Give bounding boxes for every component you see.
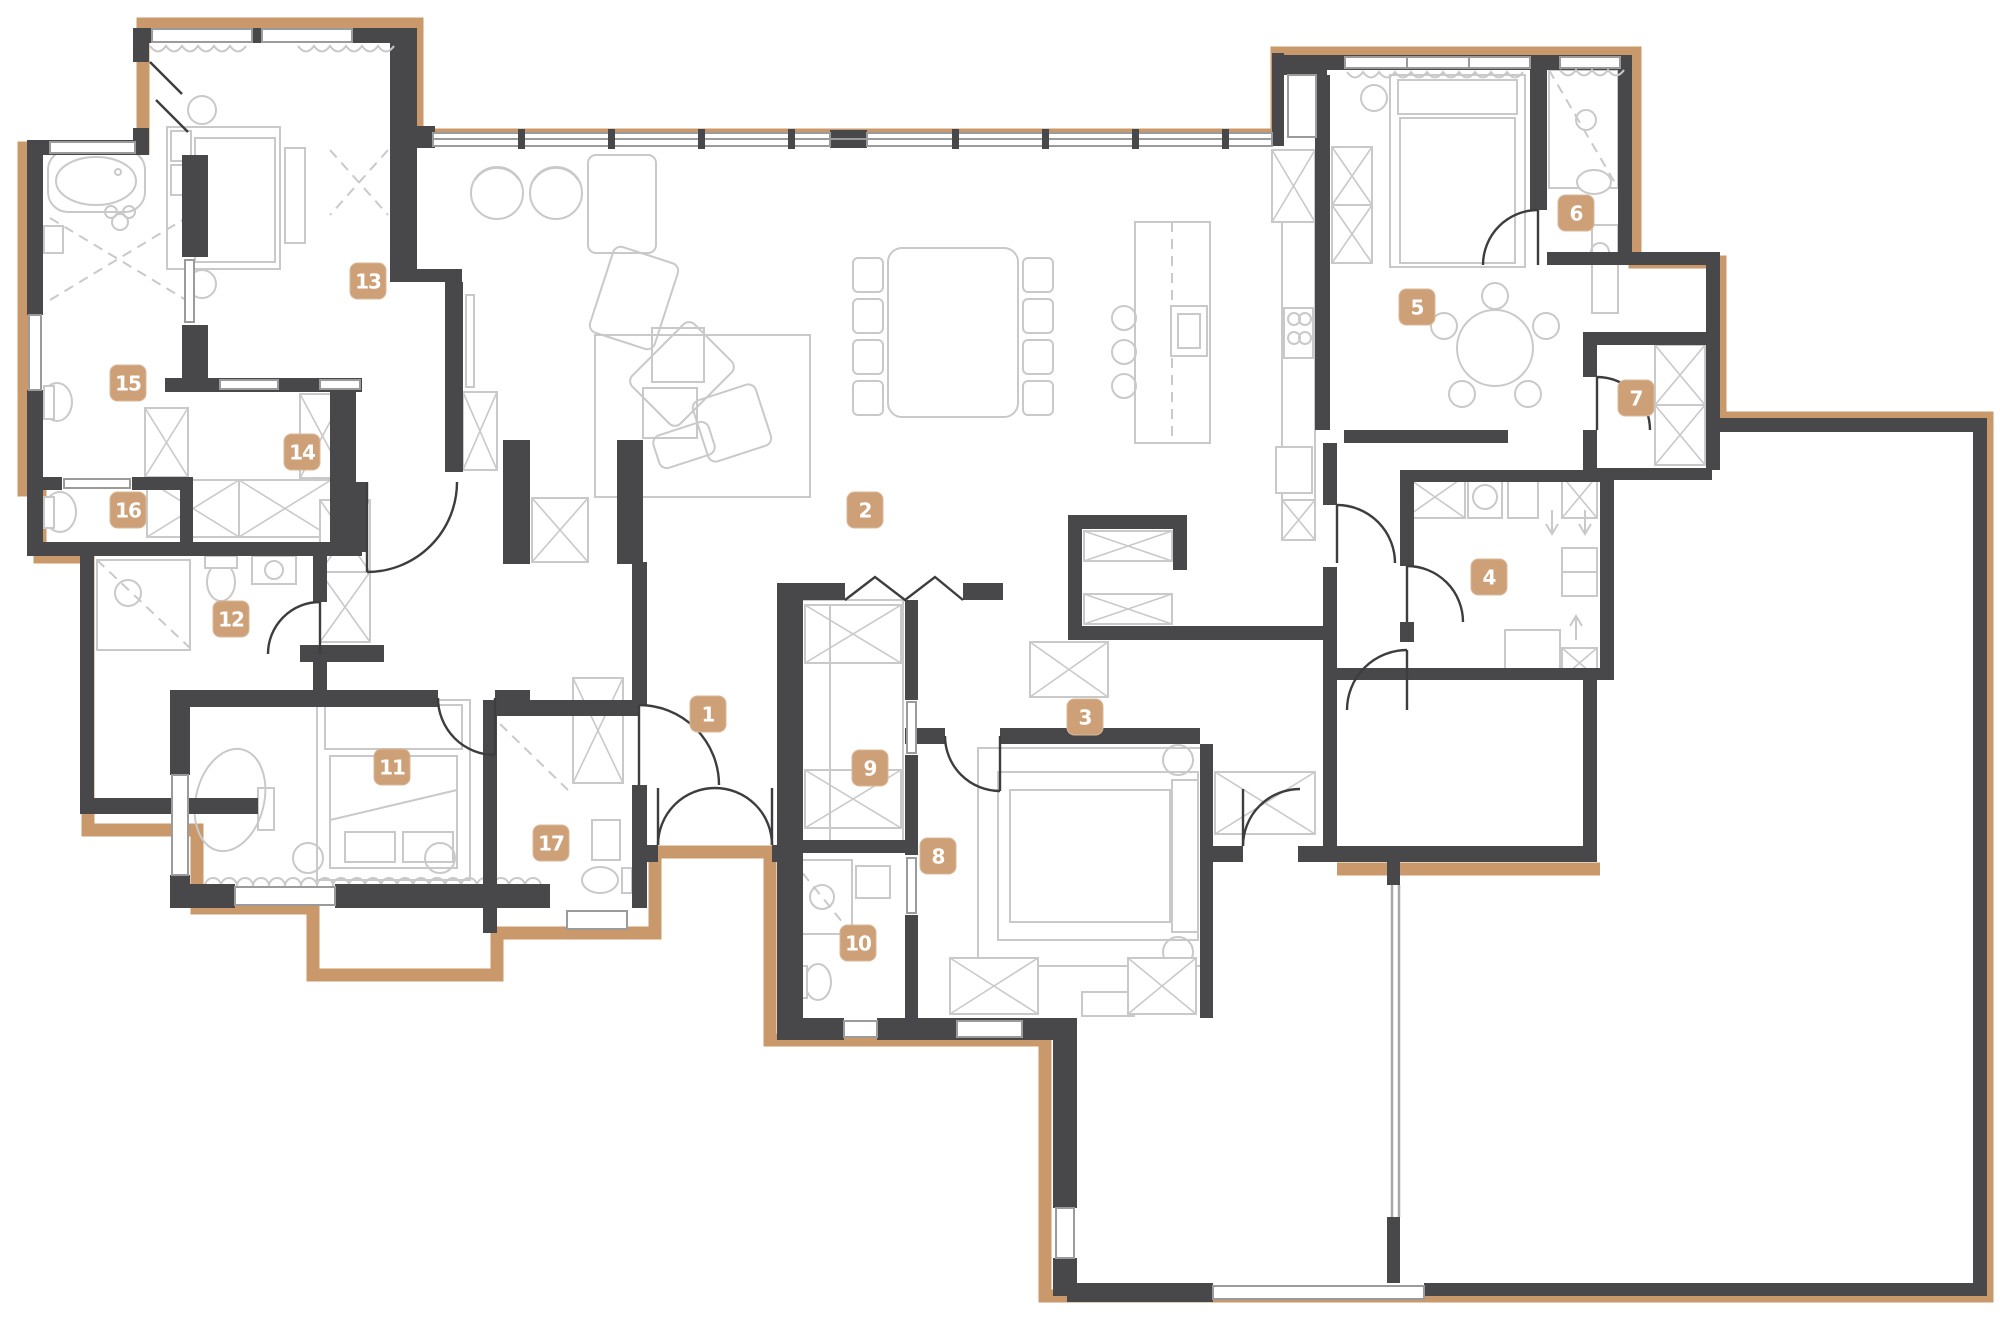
room-badge-12: 12 [213,601,250,638]
walls-layer [27,28,1987,1302]
room-badge-13: 13 [350,263,387,300]
room-badge-7: 7 [1618,380,1655,417]
floor-plan: 1234567891011121314151617 [0,0,2000,1326]
room-badge-10: 10 [840,925,877,962]
room-badge-2: 2 [847,492,884,529]
room-badge-3: 3 [1067,699,1104,736]
room-badge-9: 9 [852,750,889,787]
room-badge-17: 17 [533,825,570,862]
room-badge-4: 4 [1471,559,1508,596]
room-badge-11: 11 [374,749,411,786]
floor-plan-drawing [0,0,2000,1326]
room-badge-8: 8 [920,838,957,875]
room-badge-14: 14 [284,434,321,471]
room-badge-15: 15 [110,365,147,402]
room-badge-5: 5 [1399,289,1436,326]
room-badge-6: 6 [1558,195,1595,232]
room-badge-16: 16 [110,492,147,529]
room-badge-1: 1 [690,696,727,733]
